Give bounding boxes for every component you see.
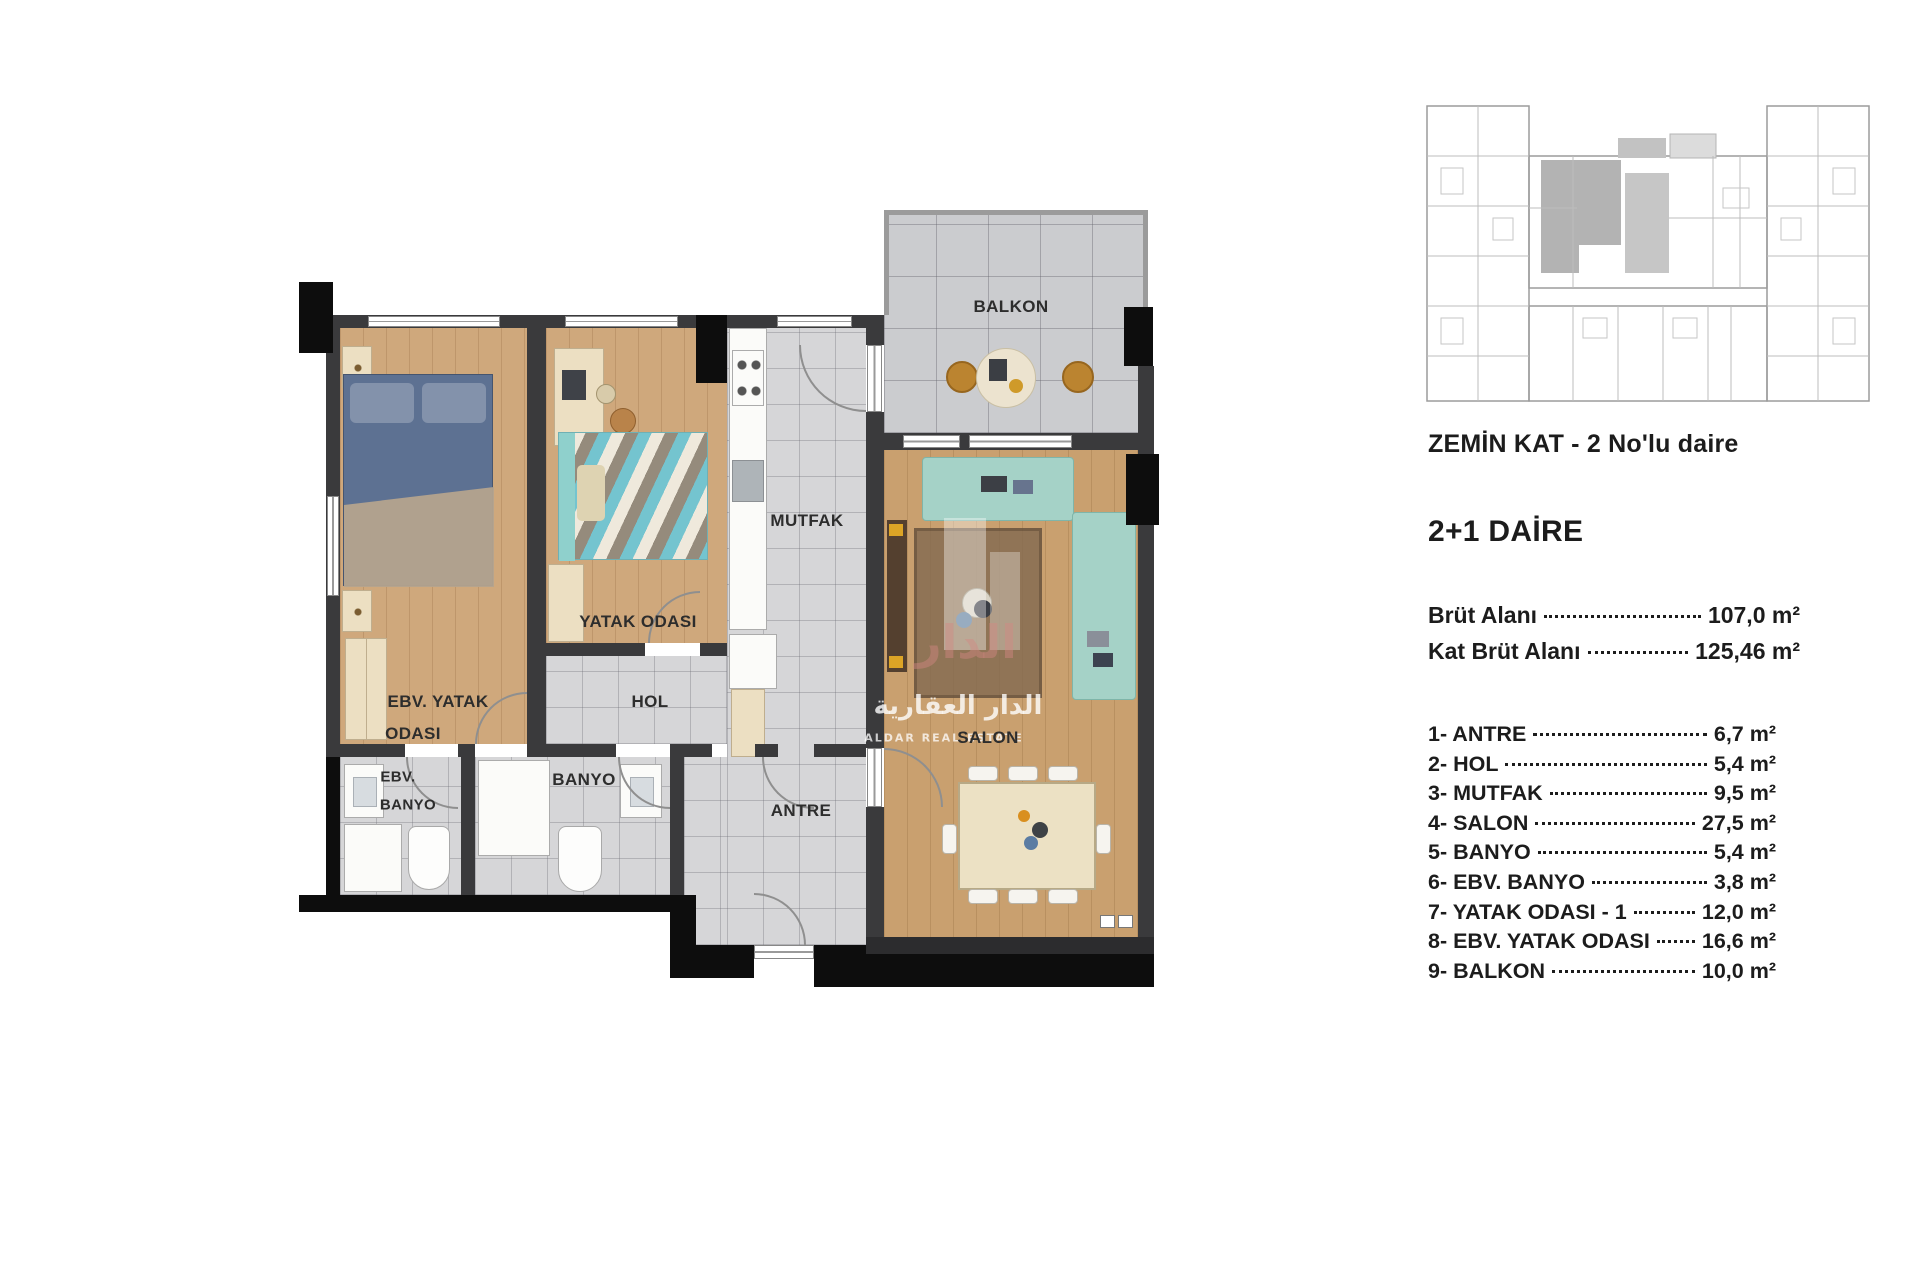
salon-window <box>903 435 960 448</box>
room-label: 8- EBV. YATAK ODASI <box>1428 929 1650 954</box>
wall <box>866 315 884 345</box>
room-value: 5,4 m² <box>1714 752 1776 777</box>
dotted-leader <box>1588 651 1689 654</box>
window <box>565 316 678 327</box>
wall <box>670 895 696 978</box>
stool <box>610 408 636 434</box>
dotted-leader <box>1533 733 1707 736</box>
shower <box>344 824 402 892</box>
balcony-rail <box>884 210 1148 215</box>
entrance-opening <box>754 945 814 959</box>
label-ebv-banyo-2: BANYO <box>380 797 436 814</box>
label-balkon: BALKON <box>973 297 1048 317</box>
dotted-leader <box>1657 940 1695 943</box>
room-row: 1- ANTRE6,7 m² <box>1428 722 1776 752</box>
sofa-items <box>1087 631 1109 647</box>
table-decor <box>1024 836 1038 850</box>
wardrobe <box>345 638 387 740</box>
wall <box>700 643 727 656</box>
dotted-leader <box>1552 970 1695 973</box>
label-hol: HOL <box>631 692 668 712</box>
room-label: 4- SALON <box>1428 811 1528 836</box>
dining-chair <box>1048 889 1078 904</box>
window <box>327 496 339 596</box>
sofa-items <box>981 476 1007 492</box>
room-row: 3- MUTFAK9,5 m² <box>1428 781 1776 811</box>
pillow <box>422 383 486 423</box>
room-value: 3,8 m² <box>1714 870 1776 895</box>
area-value: 107,0 m² <box>1708 602 1800 629</box>
area-label: Kat Brüt Alanı <box>1428 638 1581 665</box>
sink <box>344 764 384 818</box>
label-banyo: BANYO <box>552 770 615 790</box>
dotted-leader <box>1544 615 1701 618</box>
wall <box>1138 366 1154 937</box>
dotted-leader <box>1505 763 1706 766</box>
wall <box>527 328 546 757</box>
balcony-rail <box>884 210 889 315</box>
room-row: 5- BANYO5,4 m² <box>1428 840 1776 870</box>
table-items <box>1009 379 1023 393</box>
room-list: 1- ANTRE6,7 m² 2- HOL5,4 m² 3- MUTFAK9,5… <box>1428 722 1776 988</box>
dotted-leader <box>1535 822 1695 825</box>
room-row: 2- HOL5,4 m² <box>1428 752 1776 782</box>
tv-unit <box>887 520 907 672</box>
wall <box>670 757 684 895</box>
kitchen-sink <box>732 460 764 502</box>
floor-plan: الدار الدار العقارية ALDAR REAL ESTATE B… <box>250 160 1190 1000</box>
key-plan-drawing <box>1408 68 1888 418</box>
window <box>368 316 500 327</box>
label-yatak-odasi: YATAK ODASI <box>579 612 696 632</box>
dotted-leader <box>1634 911 1695 914</box>
room-label: 9- BALKON <box>1428 959 1545 984</box>
dining-chair <box>1008 889 1038 904</box>
tv-unit-accent <box>889 656 903 668</box>
wall <box>326 744 405 757</box>
label-ebv-yatak-1: EBV. YATAK <box>387 692 488 712</box>
balcony-table <box>976 348 1036 408</box>
wall <box>461 757 475 895</box>
wall <box>1126 454 1159 525</box>
sofa <box>922 457 1074 521</box>
dining-chair <box>1008 766 1038 781</box>
corner-block <box>299 282 333 353</box>
room-row: 4- SALON27,5 m² <box>1428 811 1776 841</box>
window <box>777 316 852 327</box>
label-salon: SALON <box>957 728 1019 748</box>
area-row: Brüt Alanı 107,0 m² <box>1428 602 1800 638</box>
wall <box>866 937 1154 954</box>
room-label: 6- EBV. BANYO <box>1428 870 1585 895</box>
watermark-arabic: الدار العقارية <box>874 691 1043 721</box>
watermark-arabic-big: الدار <box>915 615 1017 669</box>
pillow <box>350 383 414 423</box>
label-antre: ANTRE <box>771 801 832 821</box>
room-label: 1- ANTRE <box>1428 722 1526 747</box>
sofa-items <box>1093 653 1113 667</box>
laptop <box>562 370 586 400</box>
room-row: 6- EBV. BANYO3,8 m² <box>1428 870 1776 900</box>
dining-chair <box>968 889 998 904</box>
nightstand <box>342 590 372 632</box>
label-ebv-banyo-1: EBV. <box>380 769 415 786</box>
room-value: 10,0 m² <box>1702 959 1776 984</box>
area-summary: Brüt Alanı 107,0 m² Kat Brüt Alanı 125,4… <box>1428 602 1800 674</box>
wall <box>527 744 616 757</box>
label-ebv-yatak-2: ODASI <box>385 724 441 744</box>
room-label: 2- HOL <box>1428 752 1498 777</box>
key-plan-caption: ZEMİN KAT - 2 No'lu daire <box>1428 430 1739 459</box>
dining-chair <box>942 824 957 854</box>
room-value: 16,6 m² <box>1702 929 1776 954</box>
dining-chair <box>1048 766 1078 781</box>
room-value: 5,4 m² <box>1714 840 1776 865</box>
blanket <box>344 487 494 587</box>
room-row: 7- YATAK ODASI - 112,0 m² <box>1428 900 1776 930</box>
double-bed <box>343 374 493 586</box>
pillow <box>577 465 605 521</box>
dotted-leader <box>1550 792 1707 795</box>
sofa-items <box>1013 480 1033 494</box>
desk-chair <box>596 384 616 404</box>
toilet <box>558 826 602 892</box>
unit-type-title: 2+1 DAİRE <box>1428 515 1583 549</box>
balcony-chair <box>946 361 978 393</box>
room-value: 9,5 m² <box>1714 781 1776 806</box>
area-row: Kat Brüt Alanı 125,46 m² <box>1428 638 1800 674</box>
basin <box>353 777 377 807</box>
dining-chair <box>1096 824 1111 854</box>
wall <box>884 954 1154 987</box>
tv-unit-accent <box>889 524 903 536</box>
room-value: 27,5 m² <box>1702 811 1776 836</box>
wall <box>696 945 754 978</box>
highlighted-unit <box>1541 160 1669 273</box>
headboard <box>559 433 575 561</box>
dotted-leader <box>1592 881 1707 884</box>
area-label: Brüt Alanı <box>1428 602 1537 629</box>
wall <box>546 643 645 656</box>
room-label: 7- YATAK ODASI - 1 <box>1428 900 1627 925</box>
shower <box>478 760 550 856</box>
toilet <box>408 826 450 890</box>
balcony-chair <box>1062 361 1094 393</box>
area-value: 125,46 m² <box>1695 638 1800 665</box>
ac-unit <box>1118 915 1133 928</box>
wall <box>299 895 684 912</box>
table-items <box>989 359 1007 381</box>
wall <box>670 744 712 757</box>
wall <box>814 744 866 757</box>
wall <box>755 744 778 757</box>
page: { "floor_plan": { "labels": { "balkon": … <box>0 0 1920 1280</box>
fridge <box>729 634 777 689</box>
balcony-rail <box>1143 214 1148 307</box>
sofa-l <box>1072 512 1136 700</box>
room-label: 3- MUTFAK <box>1428 781 1543 806</box>
room-value: 12,0 m² <box>1702 900 1776 925</box>
wall <box>866 807 884 937</box>
wall <box>326 748 340 912</box>
ac-unit <box>1100 915 1115 928</box>
room-label: 5- BANYO <box>1428 840 1531 865</box>
dining-table <box>958 782 1096 890</box>
dotted-leader <box>1538 851 1707 854</box>
room-row: 9- BALKON10,0 m² <box>1428 959 1776 989</box>
single-bed <box>558 432 708 560</box>
dining-chair <box>968 766 998 781</box>
balcony-door-opening <box>867 345 882 412</box>
salon-window <box>969 435 1072 448</box>
room-row: 8- EBV. YATAK ODASI16,6 m² <box>1428 929 1776 959</box>
stove <box>732 350 764 406</box>
wall <box>458 744 475 757</box>
table-decor <box>1018 810 1030 822</box>
label-mutfak: MUTFAK <box>770 511 843 531</box>
room-value: 6,7 m² <box>1714 722 1776 747</box>
table-decor <box>1032 822 1048 838</box>
wall <box>1124 307 1153 366</box>
pillar <box>696 315 727 383</box>
salon-door-opening <box>867 748 882 807</box>
